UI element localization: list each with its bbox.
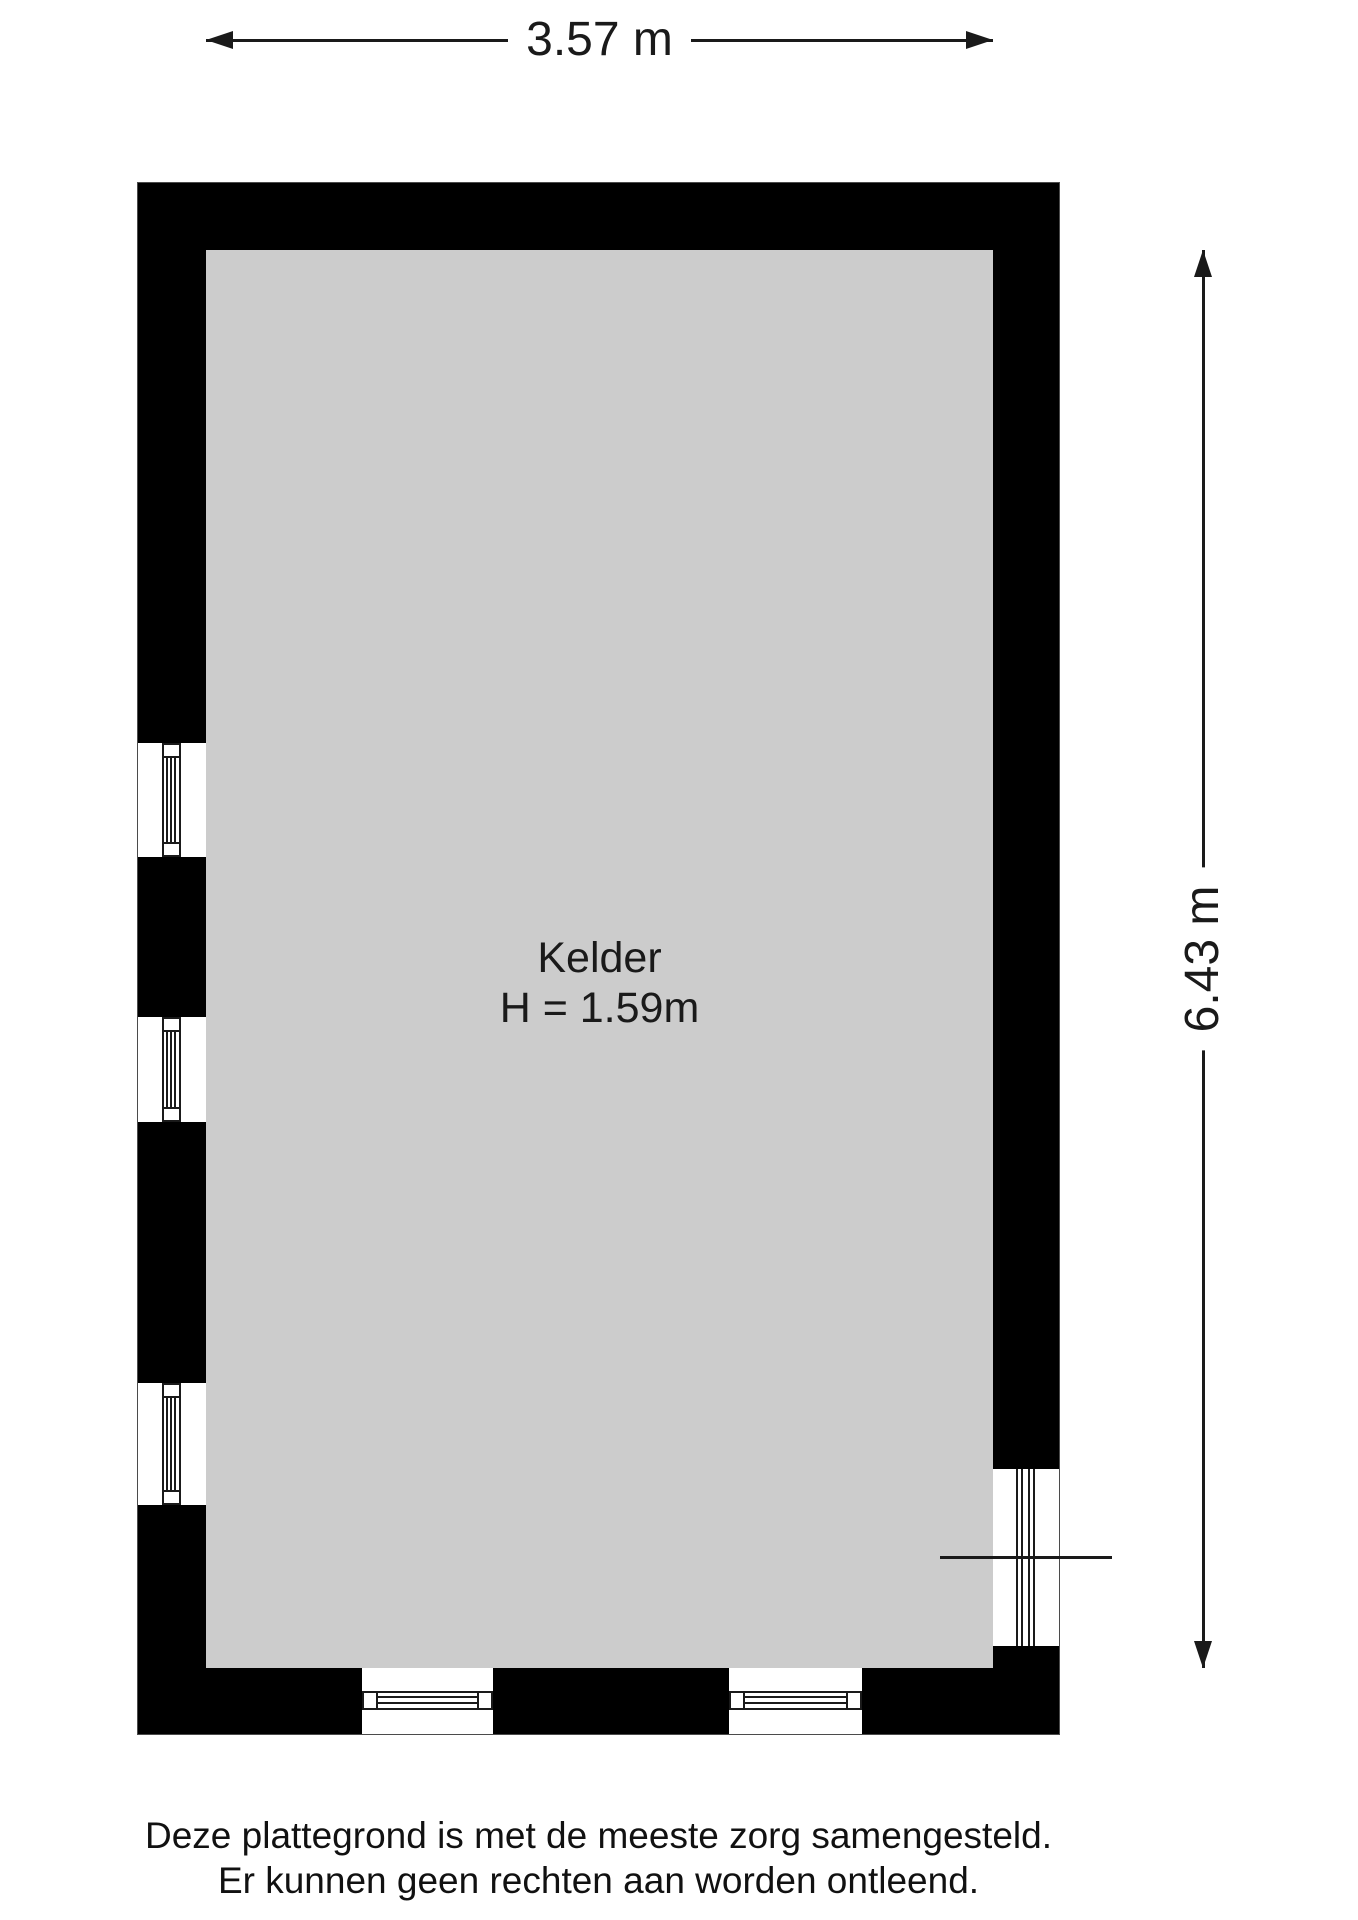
window-frame <box>362 1691 493 1710</box>
width-dimension-label: 3.57 m <box>508 12 691 68</box>
window-glass <box>164 758 179 842</box>
arrow-up-icon <box>1194 250 1212 277</box>
window-sill <box>477 1693 491 1708</box>
room-ceiling-height: H = 1.59m <box>206 983 993 1033</box>
floorplan-page: { "dimensions": { "width": "3.57 m", "he… <box>0 0 1358 1920</box>
window-sill <box>846 1693 860 1708</box>
window-sill <box>164 1107 179 1120</box>
window-glass <box>164 1398 179 1490</box>
window-sill <box>164 1490 179 1503</box>
window-sill <box>164 842 179 855</box>
height-dimension-label: 6.43 m <box>1175 868 1231 1051</box>
width-dimension: 3.57 m <box>206 12 993 68</box>
window-frame <box>162 743 181 857</box>
window-frame <box>162 1383 181 1505</box>
arrow-down-icon <box>1194 1641 1212 1668</box>
window-sill <box>164 745 179 758</box>
window-sill <box>364 1693 378 1708</box>
window-sill <box>731 1693 745 1708</box>
disclaimer: Deze plattegrond is met de meeste zorg s… <box>138 1813 1059 1903</box>
window-sill <box>164 1385 179 1398</box>
disclaimer-line-1: Deze plattegrond is met de meeste zorg s… <box>138 1813 1059 1858</box>
window-left-2 <box>138 1017 206 1122</box>
window-glass <box>164 1032 179 1107</box>
window-left-3 <box>138 1383 206 1505</box>
window-left-1 <box>138 743 206 857</box>
door-threshold-line <box>940 1556 1112 1559</box>
window-sill <box>164 1019 179 1032</box>
window-bottom-1 <box>362 1668 493 1734</box>
window-frame <box>729 1691 862 1710</box>
window-frame <box>162 1017 181 1122</box>
room-name: Kelder <box>206 933 993 983</box>
window-glass <box>378 1693 477 1708</box>
room-label: Kelder H = 1.59m <box>206 933 993 1033</box>
disclaimer-line-2: Er kunnen geen rechten aan worden ontlee… <box>138 1858 1059 1903</box>
window-bottom-2 <box>729 1668 862 1734</box>
window-glass <box>745 1693 846 1708</box>
